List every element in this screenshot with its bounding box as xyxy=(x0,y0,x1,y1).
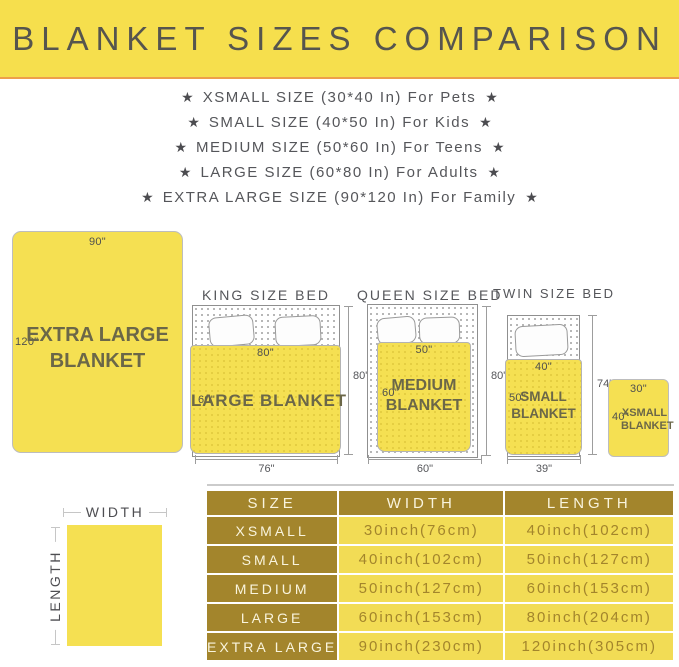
table-row: EXTRA LARGE 90inch(230cm) 120inch(305cm) xyxy=(207,633,673,660)
size-cell: LARGE xyxy=(207,604,337,631)
column-header-width: WIDTH xyxy=(339,491,503,515)
star-icon: ★ xyxy=(492,139,505,155)
legend-width-label: WIDTH xyxy=(60,504,170,520)
star-icon: ★ xyxy=(141,189,154,205)
twin-name-line1: SMALL xyxy=(506,388,581,405)
table-row: XSMALL 30inch(76cm) 40inch(102cm) xyxy=(207,517,673,544)
star-icon: ★ xyxy=(174,139,187,155)
page-title: BLANKET SIZES COMPARISON xyxy=(12,20,667,58)
size-list-item: ★MEDIUM SIZE (50*60 In) For Teens★ xyxy=(0,135,679,160)
king-width-dimension-line xyxy=(195,459,338,460)
size-cell: MEDIUM xyxy=(207,575,337,602)
star-icon: ★ xyxy=(179,164,192,180)
size-list-item: ★XSMALL SIZE (30*40 In) For Pets★ xyxy=(0,85,679,110)
size-list-item: ★EXTRA LARGE SIZE (90*120 In) For Family… xyxy=(0,185,679,210)
table-row: MEDIUM 50inch(127cm) 60inch(153cm) xyxy=(207,575,673,602)
extra-large-blanket: 90" 120" EXTRA LARGE BLANKET xyxy=(12,231,183,453)
queen-name-line2: BLANKET xyxy=(378,396,470,416)
king-height-dimension-line xyxy=(348,306,349,455)
size-list-text: SMALL SIZE (40*50 In) For Kids xyxy=(209,114,470,131)
pillow xyxy=(274,315,322,347)
star-icon: ★ xyxy=(485,89,498,105)
width-cell: 60inch(153cm) xyxy=(339,604,503,631)
xl-name-line1: EXTRA LARGE xyxy=(13,322,182,348)
column-header-length: LENGTH xyxy=(505,491,673,515)
header-banner: BLANKET SIZES COMPARISON xyxy=(0,0,679,77)
xl-blanket-name: EXTRA LARGE BLANKET xyxy=(13,322,182,374)
queen-bed-title: QUEEN SIZE BED xyxy=(357,287,487,303)
twin-height-dimension-line xyxy=(592,315,593,455)
xs-name-line1: XSMALL xyxy=(621,407,668,420)
infographic-root: BLANKET SIZES COMPARISON ★XSMALL SIZE (3… xyxy=(0,0,679,667)
star-icon: ★ xyxy=(525,189,538,205)
king-blanket-width-label: 80" xyxy=(191,347,340,359)
banner-accent-line xyxy=(0,77,679,79)
twin-name-line2: BLANKET xyxy=(506,405,581,422)
size-list-text: EXTRA LARGE SIZE (90*120 In) For Family xyxy=(163,189,517,206)
large-blanket-name: LARGE BLANKET xyxy=(191,391,340,411)
xsmall-blanket: 30" 40" XSMALL BLANKET xyxy=(608,379,669,457)
size-comparison-table: SIZE WIDTH LENGTH XSMALL 30inch(76cm) 40… xyxy=(205,489,675,662)
xsmall-blanket-name: XSMALL BLANKET xyxy=(609,407,668,433)
xl-width-label: 90" xyxy=(13,236,182,248)
xl-name-line2: BLANKET xyxy=(13,348,182,374)
twin-bed-title: TWIN SIZE BED xyxy=(493,286,597,301)
width-cell: 50inch(127cm) xyxy=(339,575,503,602)
size-list: ★XSMALL SIZE (30*40 In) For Pets★ ★SMALL… xyxy=(0,85,679,210)
size-cell: EXTRA LARGE xyxy=(207,633,337,660)
pillow xyxy=(419,316,461,344)
width-cell: 90inch(230cm) xyxy=(339,633,503,660)
length-cell: 50inch(127cm) xyxy=(505,546,673,573)
legend-length-label: LENGTH xyxy=(47,542,63,630)
length-cell: 120inch(305cm) xyxy=(505,633,673,660)
size-list-text: LARGE SIZE (60*80 In) For Adults xyxy=(200,164,478,181)
star-icon: ★ xyxy=(181,89,194,105)
queen-height-dimension-line xyxy=(486,306,487,456)
star-icon: ★ xyxy=(479,114,492,130)
star-icon: ★ xyxy=(187,114,200,130)
pillow xyxy=(208,314,255,348)
table-row: SMALL 40inch(102cm) 50inch(127cm) xyxy=(207,546,673,573)
star-icon: ★ xyxy=(488,164,501,180)
table-divider-line xyxy=(207,484,674,486)
size-cell: XSMALL xyxy=(207,517,337,544)
twin-width-label: 39" xyxy=(507,463,581,475)
queen-blanket-width-label: 50" xyxy=(378,344,470,356)
legend-width-text: WIDTH xyxy=(81,504,149,520)
queen-width-label: 60" xyxy=(368,463,482,475)
size-list-text: MEDIUM SIZE (50*60 In) For Teens xyxy=(196,139,483,156)
width-cell: 40inch(102cm) xyxy=(339,546,503,573)
length-cell: 80inch(204cm) xyxy=(505,604,673,631)
width-cell: 30inch(76cm) xyxy=(339,517,503,544)
king-width-label: 76" xyxy=(195,463,338,475)
medium-blanket-name: MEDIUM BLANKET xyxy=(378,376,470,416)
size-list-item: ★SMALL SIZE (40*50 In) For Kids★ xyxy=(0,110,679,135)
legend-blanket-swatch xyxy=(67,525,162,646)
pillow xyxy=(514,324,569,358)
king-bed-title: KING SIZE BED xyxy=(182,287,350,303)
small-blanket-name: SMALL BLANKET xyxy=(506,388,581,422)
size-list-text: XSMALL SIZE (30*40 In) For Pets xyxy=(203,89,477,106)
medium-blanket: 50" 60" MEDIUM BLANKET xyxy=(377,342,471,452)
length-cell: 60inch(153cm) xyxy=(505,575,673,602)
queen-name-line1: MEDIUM xyxy=(378,376,470,396)
length-cell: 40inch(102cm) xyxy=(505,517,673,544)
table-row: LARGE 60inch(153cm) 80inch(204cm) xyxy=(207,604,673,631)
large-blanket: 80" 60" LARGE BLANKET xyxy=(190,345,341,454)
table-header-row: SIZE WIDTH LENGTH xyxy=(207,491,673,515)
size-list-item: ★LARGE SIZE (60*80 In) For Adults★ xyxy=(0,160,679,185)
xs-name-line2: BLANKET xyxy=(621,420,668,433)
twin-blanket-width-label: 40" xyxy=(506,361,581,373)
column-header-size: SIZE xyxy=(207,491,337,515)
small-blanket: 40" 50" SMALL BLANKET xyxy=(505,359,582,455)
twin-width-dimension-line xyxy=(507,459,581,460)
size-cell: SMALL xyxy=(207,546,337,573)
queen-width-dimension-line xyxy=(368,459,482,460)
xs-width-label: 30" xyxy=(609,383,668,395)
